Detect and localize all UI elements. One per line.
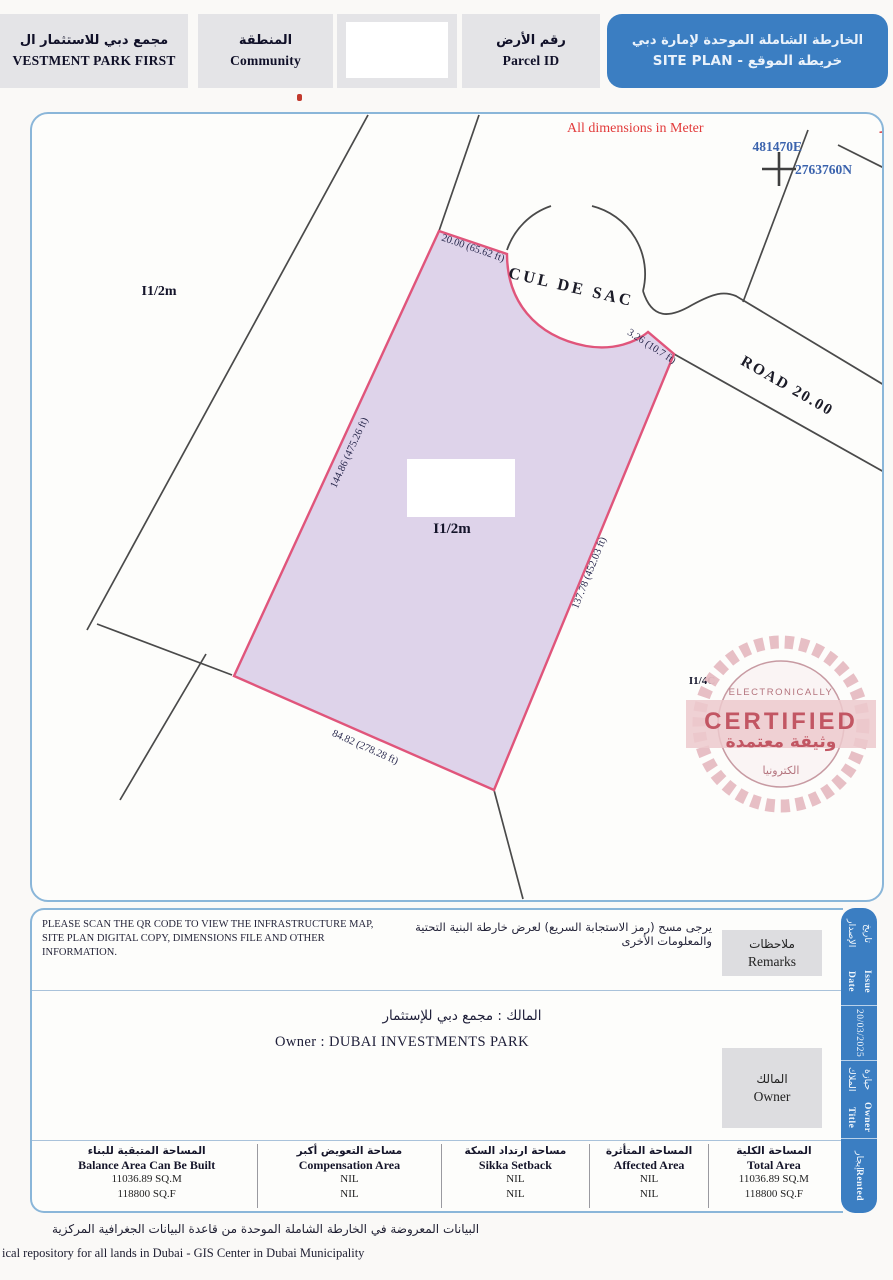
cul-de-sac-arc-right — [592, 206, 645, 291]
document-title-box: الخارطة الشاملة الموحدة لإمارة دبي خريطة… — [607, 14, 888, 88]
col-value-sqm: 11036.89 SQ.M — [112, 1172, 182, 1187]
col-value-sqf: 118800 SQ.F — [745, 1187, 803, 1202]
owner-title-label-english: Owner Title — [843, 1097, 875, 1138]
footer-arabic: البيانات المعروضة في الخارطة الشاملة الم… — [52, 1222, 522, 1236]
col-value-sqf: NIL — [506, 1187, 524, 1202]
tenure-section: إيجار Rented — [841, 1138, 877, 1213]
col-header-english: Total Area — [747, 1158, 801, 1172]
col-header-arabic: المساحة الكلية — [736, 1145, 811, 1158]
owner-value-english: Owner : DUBAI INVESTMENTS PARK — [122, 1034, 682, 1051]
project-name-box: مجمع دبي للاستثمار ال VESTMENT PARK FIRS… — [0, 14, 188, 88]
table-col-total-area: المساحة الكلية Total Area 11036.89 SQ.M … — [708, 1144, 839, 1208]
plot-redaction-box — [407, 459, 515, 517]
remarks-label-english: Remarks — [748, 954, 796, 970]
col-header-english: Sikka Setback — [479, 1158, 552, 1172]
site-plan-map: All dimensions in Meter المقياس المستخدم… — [30, 112, 884, 902]
northing-coordinate: 2763760N — [795, 162, 852, 177]
remarks-tag: ملاحظات Remarks — [722, 930, 822, 976]
table-col-sikka-setback: مساحة ارتداد السكة Sikka Setback NIL NIL — [441, 1144, 590, 1208]
tenure-label-arabic: إيجار — [851, 1151, 867, 1170]
owner-label-arabic: المالك — [756, 1072, 787, 1086]
owner-tag: المالك Owner — [722, 1048, 822, 1128]
community-label-arabic: المنطقة — [239, 33, 292, 48]
table-col-affected-area: المساحة المتأثرة Affected Area NIL NIL — [589, 1144, 707, 1208]
redacted-value-area — [346, 22, 448, 78]
issue-date-value-section: 20/03/2025 — [841, 1005, 877, 1060]
divider-owner-table — [32, 1140, 843, 1141]
col-header-arabic: المساحة المتبقية للبناء — [88, 1145, 206, 1158]
parcel-id-label-arabic: رقم الأرض — [496, 33, 566, 48]
owner-value-arabic: المالك : مجمع دبي للإستثمار — [182, 1008, 742, 1024]
issue-date-section: تاريخ الإصدار Issue Date — [841, 908, 877, 1005]
project-name-arabic: مجمع دبي للاستثمار ال — [20, 33, 168, 48]
left-parcel-label: I1/2m — [142, 284, 177, 299]
remarks-label-arabic: ملاحظات — [749, 937, 795, 951]
community-label-english: Community — [230, 53, 301, 69]
cul-de-sac-label: CUL DE SAC — [507, 263, 636, 310]
road-label: ROAD 20.00 — [738, 353, 837, 420]
col-header-arabic: مساحة ارتداد السكة — [465, 1145, 567, 1158]
col-header-arabic: المساحة المتأثرة — [606, 1145, 692, 1158]
coordinate-cross-icon — [762, 152, 796, 186]
certified-stamp: ELECTRONICALLY CERTIFIED وثيقة معتمدة ال… — [686, 642, 876, 806]
col-header-english: Compensation Area — [299, 1158, 400, 1172]
owner-title-section: حيازة الملاك Owner Title — [841, 1060, 877, 1138]
owner-label-english: Owner — [754, 1089, 791, 1105]
col-value-sqm: NIL — [640, 1172, 658, 1187]
stamp-line4: الكترونيا — [763, 764, 800, 777]
col-value-sqf: 118800 SQ.F — [118, 1187, 176, 1202]
main-parcel-label: I1/2m — [433, 521, 471, 537]
stamp-line1: ELECTRONICALLY — [729, 687, 834, 698]
col-value-sqf: NIL — [340, 1187, 358, 1202]
col-value-sqf: NIL — [640, 1187, 658, 1202]
table-col-compensation-area: مساحة التعويض أكبر Compensation Area NIL… — [257, 1144, 440, 1208]
col-header-english: Balance Area Can Be Built — [78, 1158, 215, 1172]
stamp-line2: CERTIFIED — [704, 708, 858, 735]
table-col-balance-area: المساحة المتبقية للبناء Balance Area Can… — [36, 1144, 257, 1208]
owner-title-label-arabic: حيازة الملاك — [843, 1061, 875, 1097]
cul-de-sac-arc-left — [507, 206, 551, 250]
project-name-english: VESTMENT PARK FIRST — [12, 53, 175, 69]
issue-date-label-arabic: تاريخ الإصدار — [843, 908, 875, 958]
document-title-siteplan: خريطة الموقع - SITE PLAN — [653, 53, 842, 69]
issue-date-value: 20/03/2025 — [851, 1009, 867, 1057]
col-value-sqm: NIL — [506, 1172, 524, 1187]
community-box: المنطقة Community — [198, 14, 333, 88]
col-header-english: Affected Area — [614, 1158, 685, 1172]
info-panel-content: PLEASE SCAN THE QR CODE TO VIEW THE INFR… — [30, 908, 843, 1213]
info-panel: PLEASE SCAN THE QR CODE TO VIEW THE INFR… — [30, 908, 877, 1213]
side-info-bar: تاريخ الإصدار Issue Date 20/03/2025 حياز… — [841, 908, 877, 1213]
stamp-line3: وثيقة معتمدة — [726, 732, 837, 752]
remarks-text-arabic: يرجى مسح (رمز الاستجابة السريع) لعرض خار… — [392, 920, 712, 948]
footer-english: ical repository for all lands in Dubai -… — [2, 1246, 364, 1261]
col-header-arabic: مساحة التعويض أكبر — [297, 1145, 403, 1158]
area-table: المساحة المتبقية للبناء Balance Area Can… — [36, 1144, 839, 1208]
dimensions-note-arabic: المقياس المستخدم هو المتر — [879, 119, 882, 134]
site-plan-document: مجمع دبي للاستثمار ال VESTMENT PARK FIRS… — [0, 0, 893, 1280]
col-value-sqm: 11036.89 SQ.M — [739, 1172, 809, 1187]
dimensions-note-english: All dimensions in Meter — [567, 121, 704, 136]
map-drawing: All dimensions in Meter المقياس المستخدم… — [32, 114, 882, 900]
red-scan-mark — [297, 94, 302, 101]
issue-date-label-english: Issue Date — [843, 958, 875, 1005]
divider-remarks-owner — [32, 990, 843, 991]
community-value-box — [337, 14, 457, 88]
tenure-label-english: Rented — [851, 1169, 867, 1201]
parcel-id-label-english: Parcel ID — [503, 53, 560, 69]
easting-coordinate: 481470E — [752, 139, 802, 154]
col-value-sqm: NIL — [340, 1172, 358, 1187]
parcel-id-box: رقم الأرض Parcel ID — [462, 14, 600, 88]
document-title-arabic: الخارطة الشاملة الموحدة لإمارة دبي — [632, 33, 863, 48]
